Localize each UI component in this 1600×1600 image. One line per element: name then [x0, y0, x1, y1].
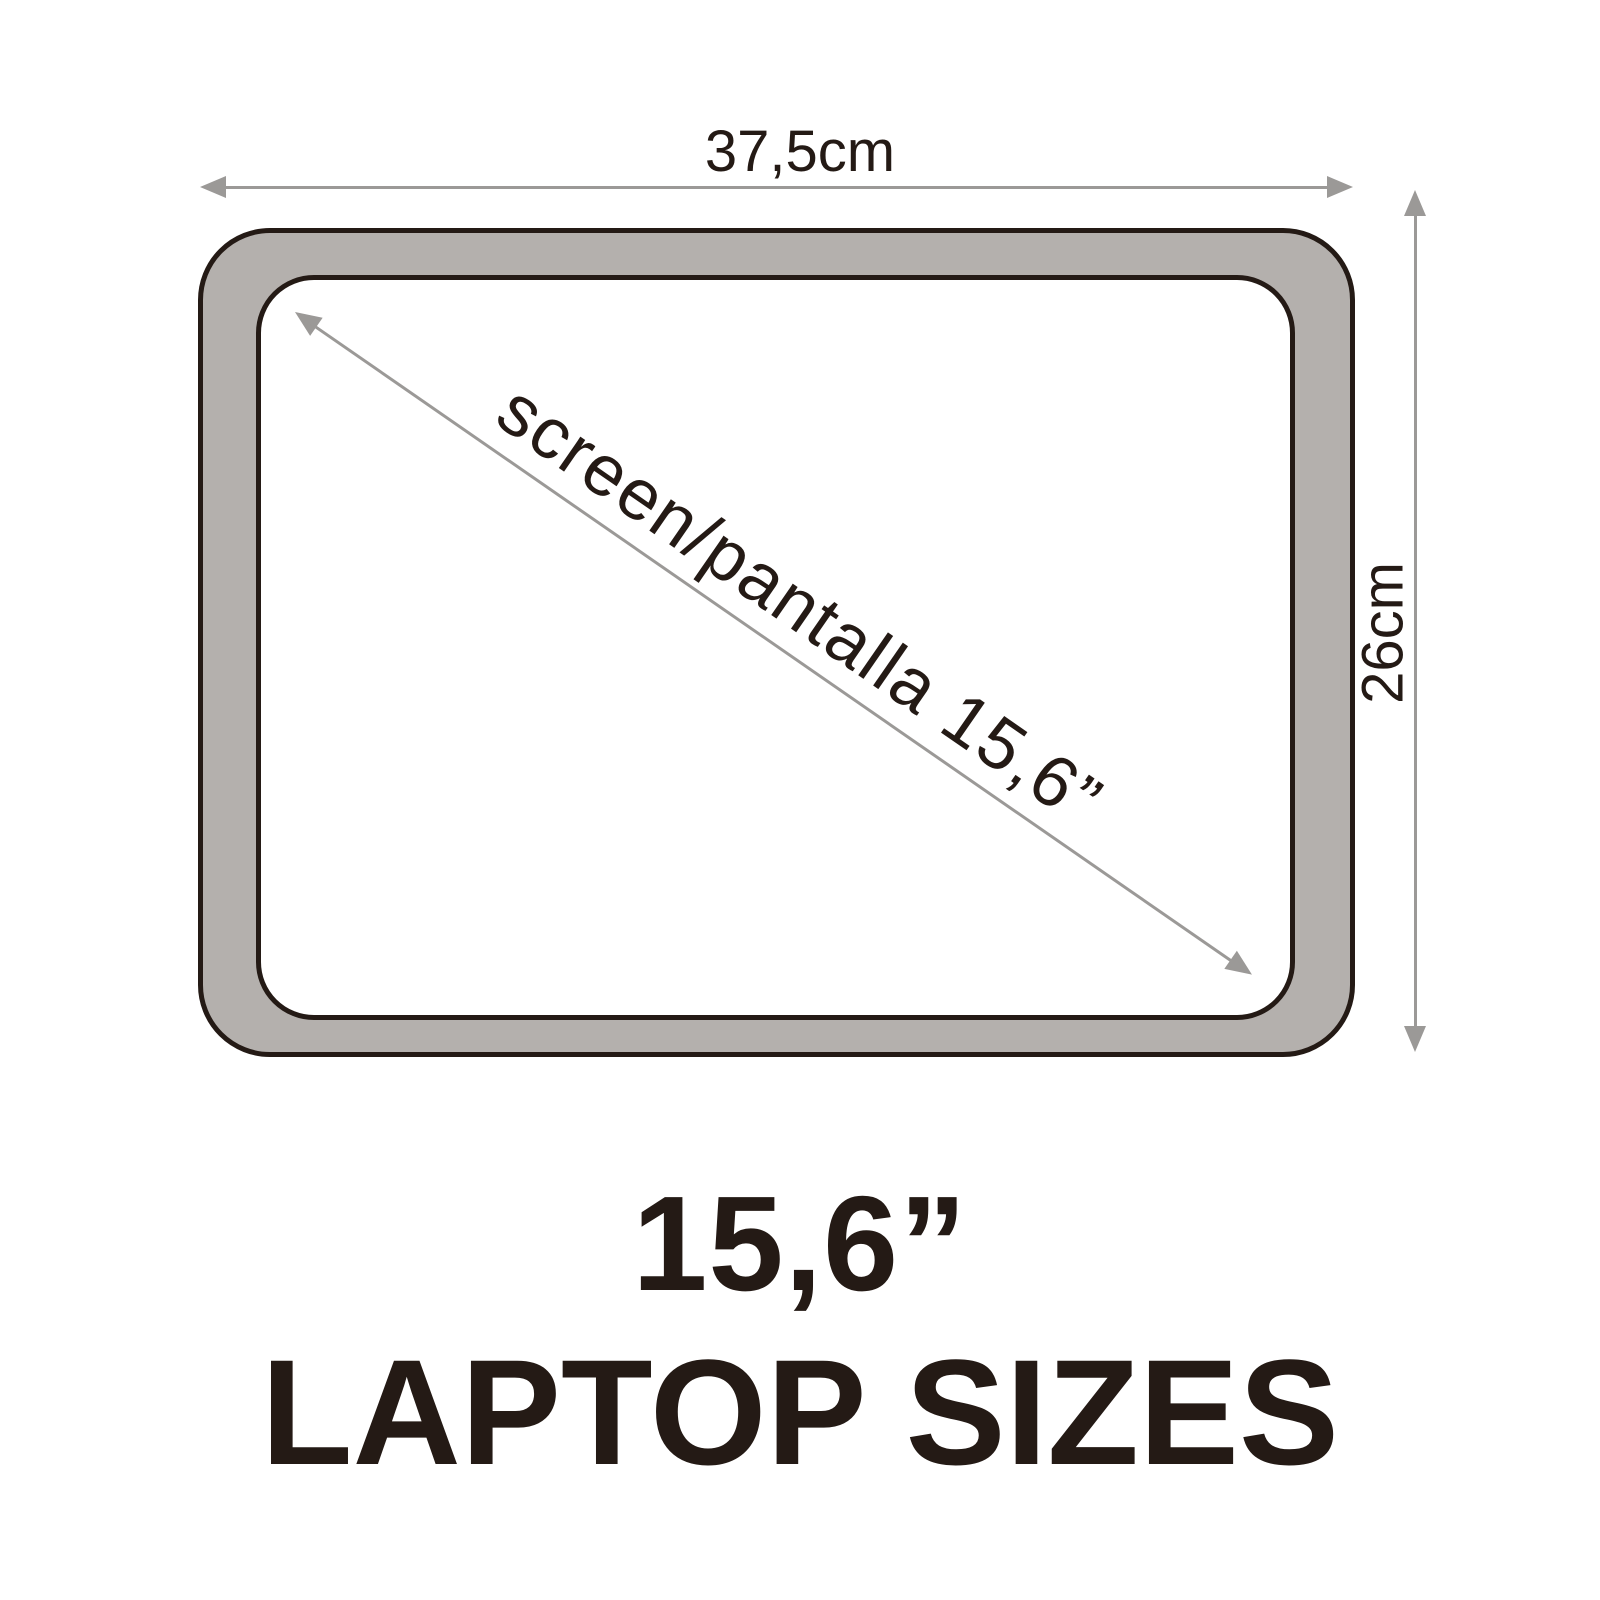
laptop-size-diagram: 37,5cm screen/pantalla 15,6” 26cm 15,6” … [0, 0, 1600, 1600]
height-dimension-label: 26cm [1350, 562, 1417, 704]
title-block: 15,6” LAPTOP SIZES [0, 1168, 1600, 1487]
title-caption: LAPTOP SIZES [0, 1337, 1600, 1487]
width-dimension-label: 37,5cm [0, 118, 1600, 185]
title-size-label: 15,6” [0, 1168, 1600, 1319]
width-dimension-line [220, 186, 1333, 189]
arrow-down-icon [1404, 1026, 1426, 1052]
